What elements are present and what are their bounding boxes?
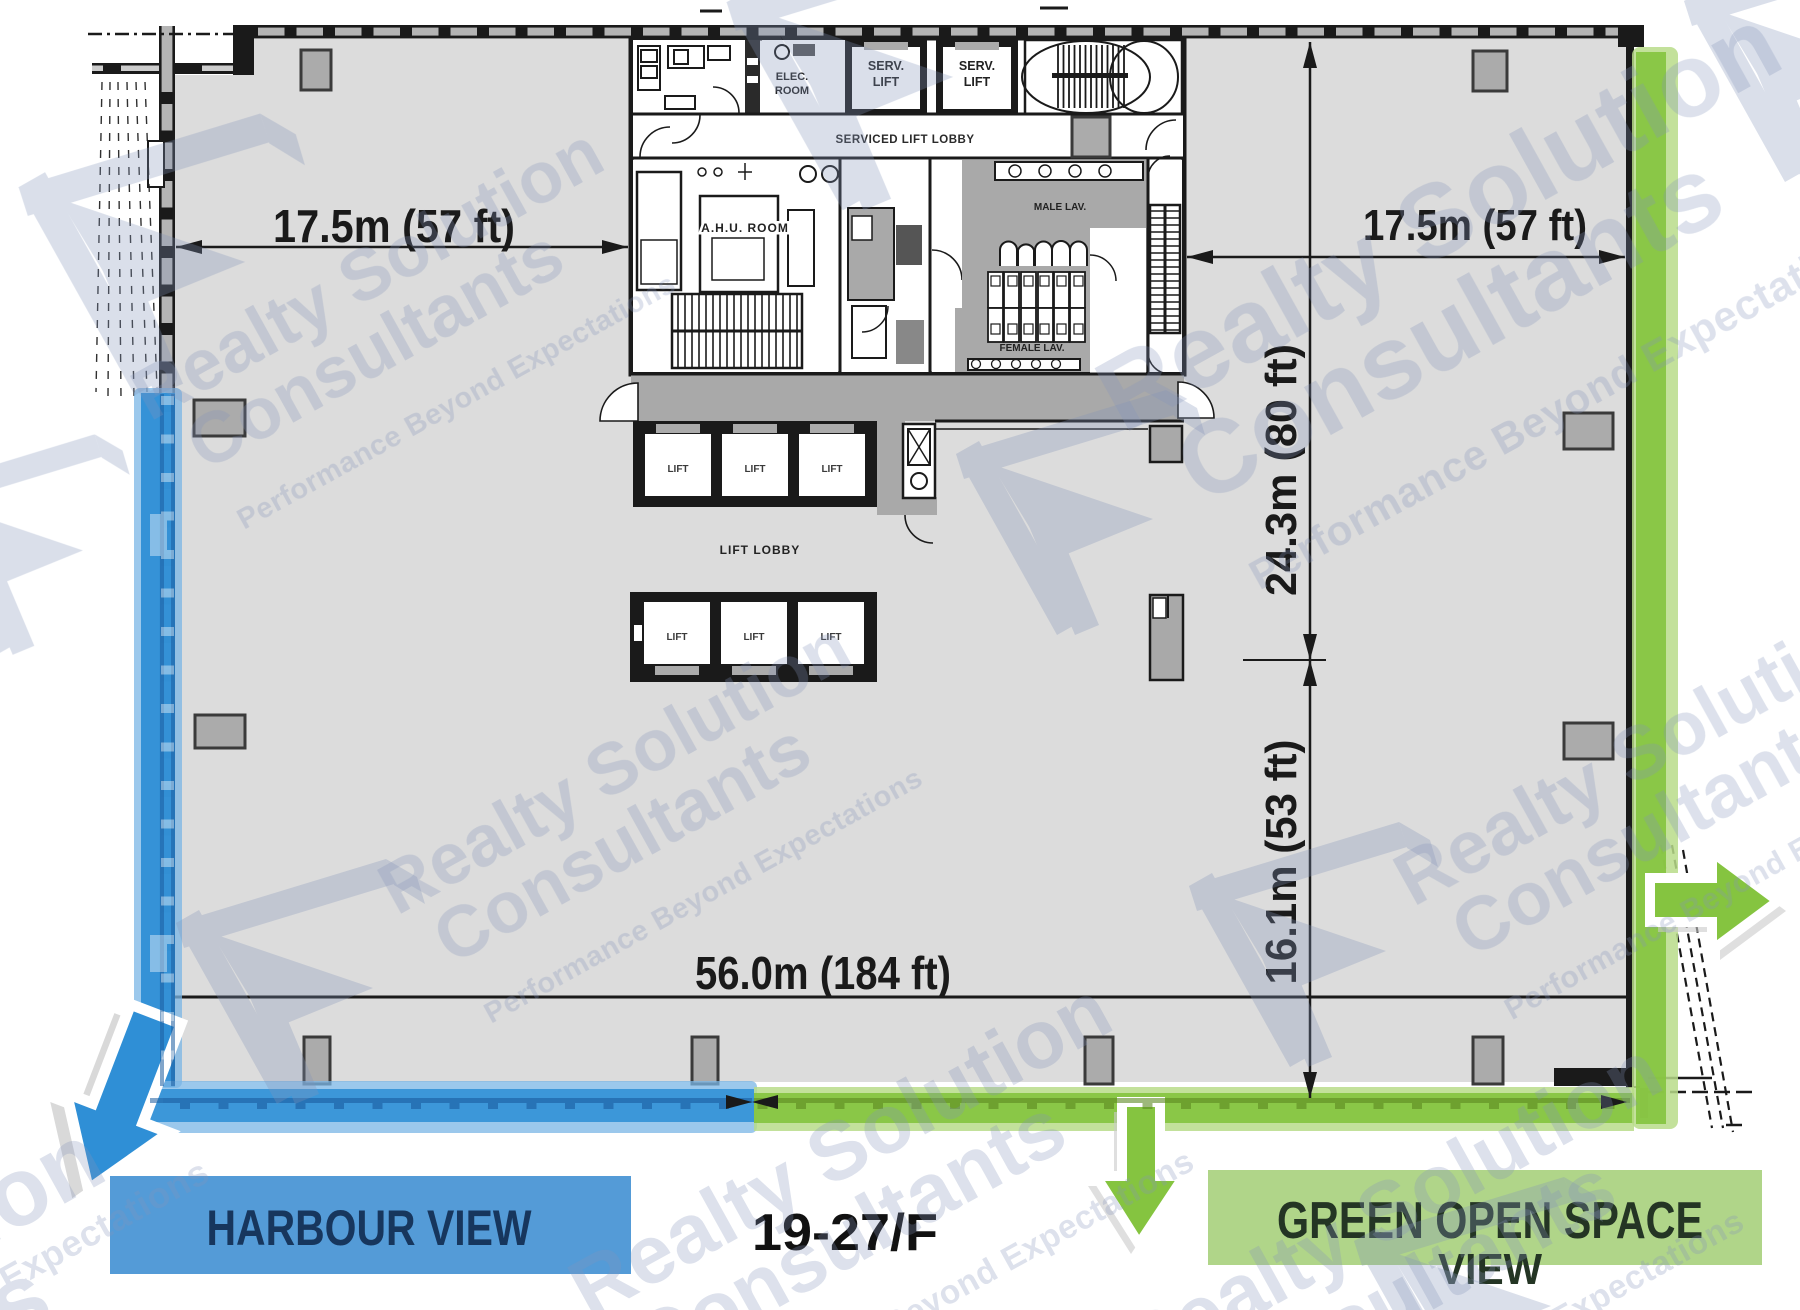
svg-text:MALE LAV.: MALE LAV. bbox=[1034, 202, 1086, 213]
svg-text:LIFT LOBBY: LIFT LOBBY bbox=[720, 543, 801, 557]
svg-text:LIFT: LIFT bbox=[744, 464, 765, 475]
svg-text:FEMALE LAV.: FEMALE LAV. bbox=[999, 343, 1064, 354]
svg-text:A.H.U. ROOM: A.H.U. ROOM bbox=[701, 221, 789, 235]
svg-text:HARBOUR VIEW: HARBOUR VIEW bbox=[207, 1200, 533, 1256]
svg-text:SERV.: SERV. bbox=[959, 59, 995, 73]
svg-text:LIFT: LIFT bbox=[666, 632, 687, 643]
svg-text:56.0m (184 ft): 56.0m (184 ft) bbox=[695, 947, 951, 999]
svg-text:LIFT: LIFT bbox=[821, 464, 842, 475]
svg-text:LIFT: LIFT bbox=[964, 75, 991, 89]
svg-text:LIFT: LIFT bbox=[667, 464, 688, 475]
